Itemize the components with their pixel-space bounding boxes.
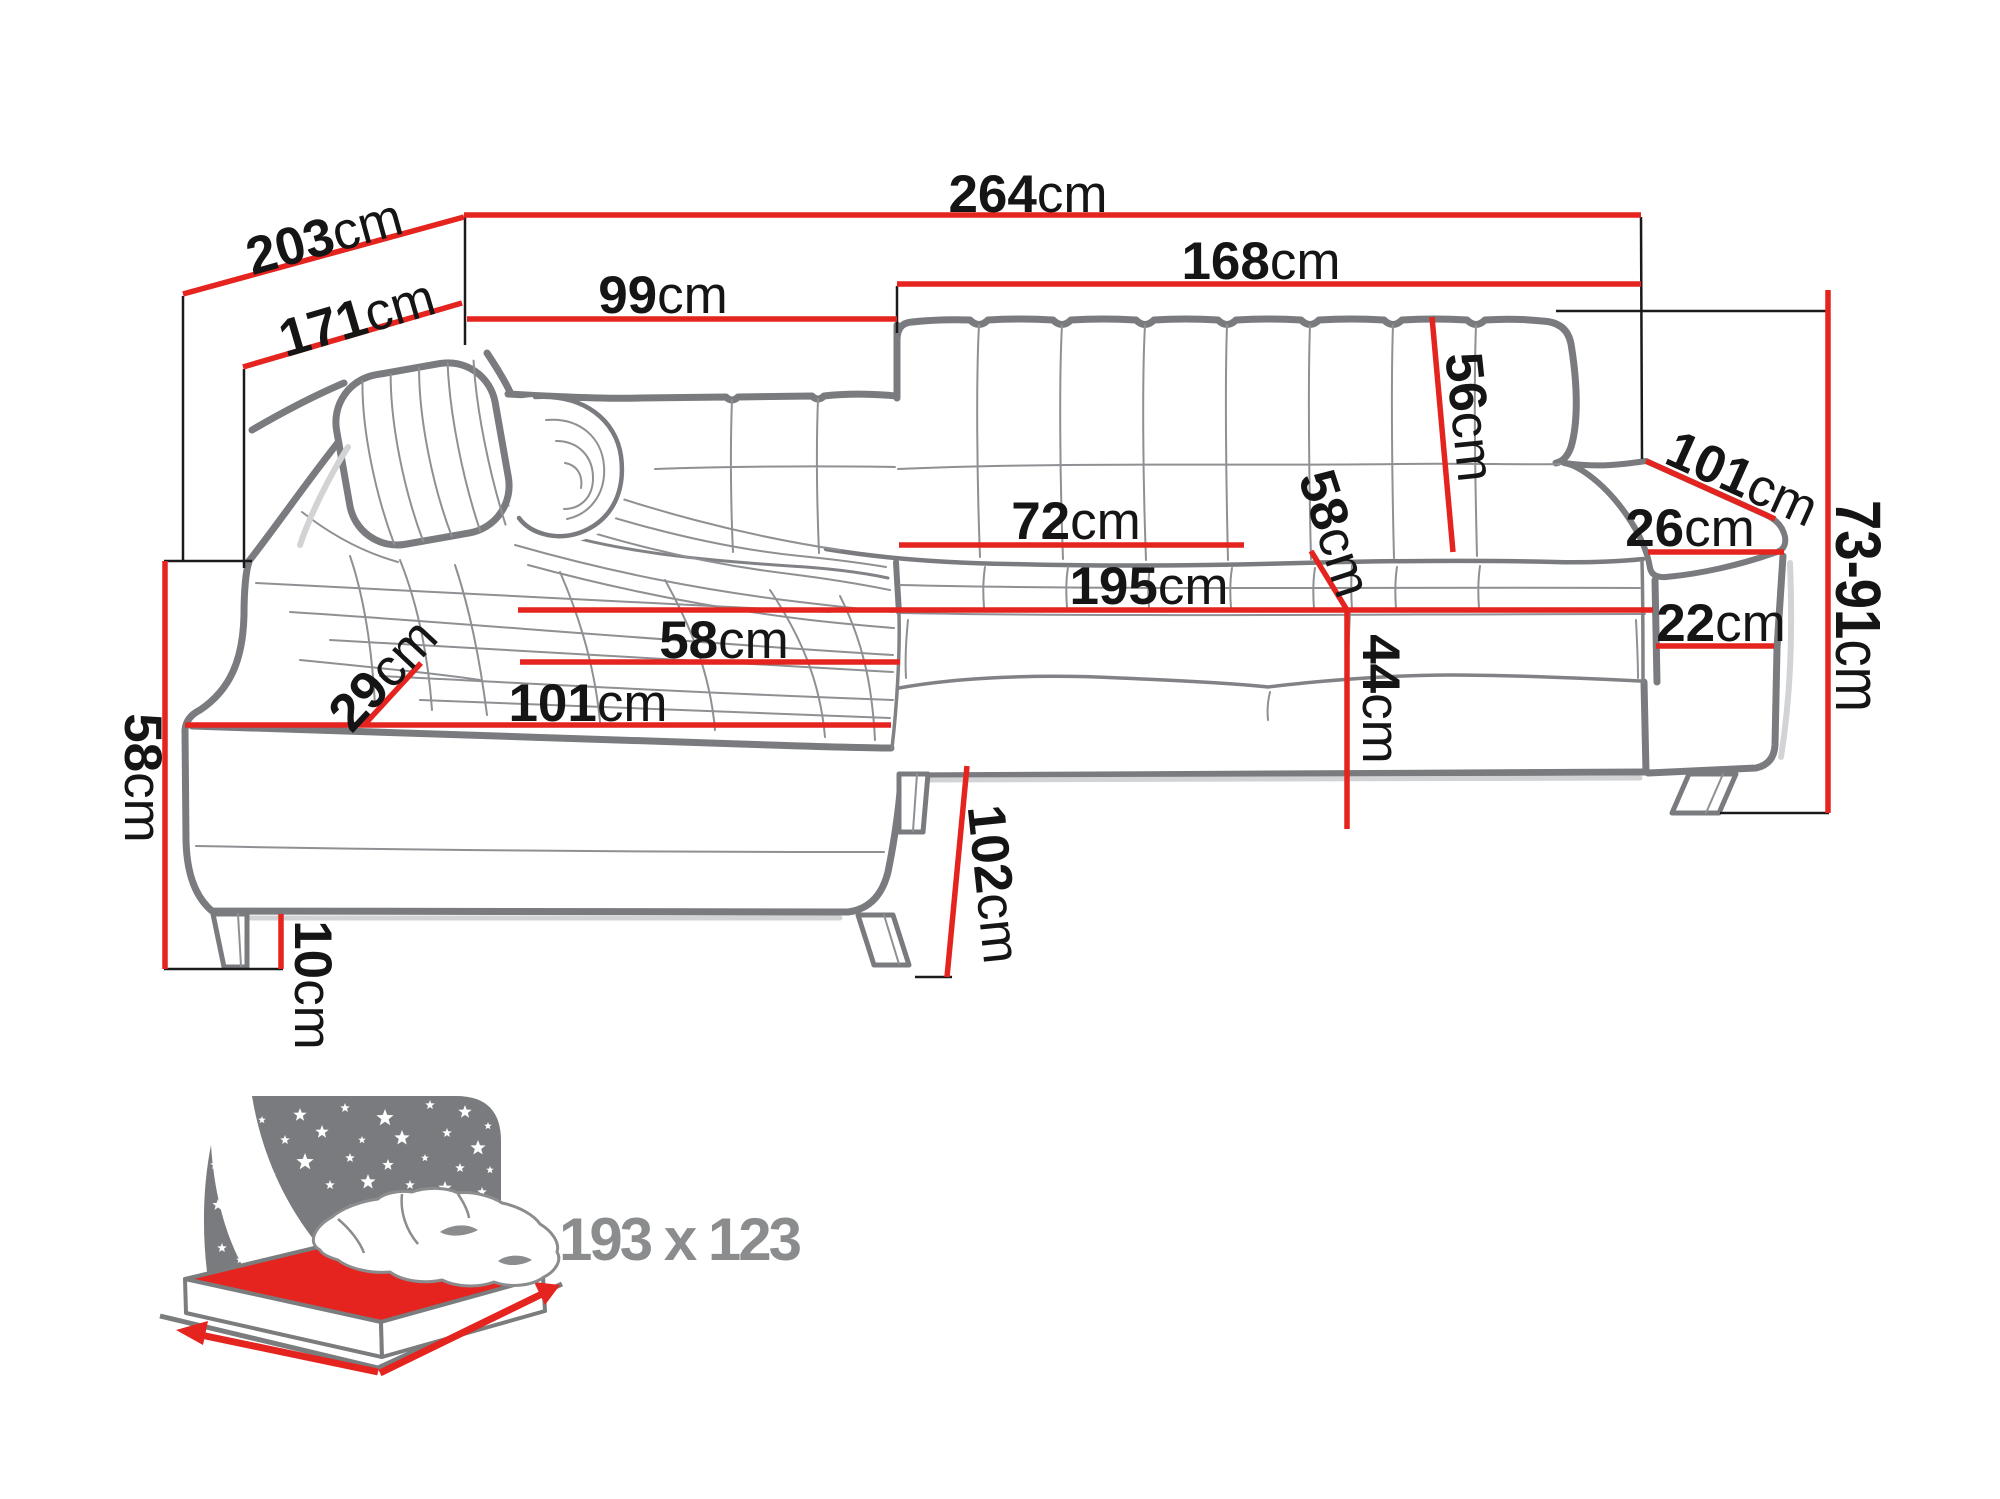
svg-text:22cm: 22cm (1656, 594, 1786, 653)
svg-text:72cm: 72cm (1011, 492, 1141, 551)
svg-text:58cm: 58cm (113, 713, 172, 843)
svg-text:195cm: 195cm (1069, 557, 1228, 616)
svg-text:58cm: 58cm (659, 611, 789, 670)
svg-text:26cm: 26cm (1625, 499, 1755, 558)
svg-text:99cm: 99cm (598, 266, 728, 325)
svg-text:73-91cm: 73-91cm (1822, 500, 1894, 712)
svg-text:44cm: 44cm (1351, 634, 1410, 764)
svg-text:193 x 123: 193 x 123 (559, 1206, 801, 1273)
svg-text:10cm: 10cm (283, 920, 342, 1050)
svg-text:264cm: 264cm (948, 165, 1107, 224)
svg-text:168cm: 168cm (1181, 232, 1340, 291)
svg-text:101cm: 101cm (508, 674, 667, 733)
